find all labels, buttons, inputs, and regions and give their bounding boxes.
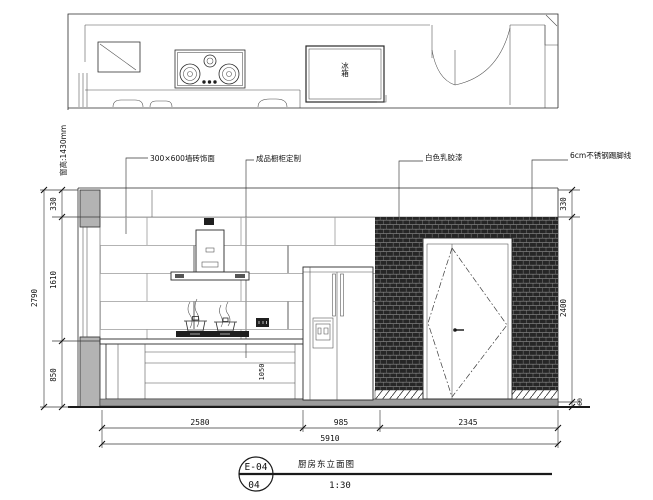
drawing-canvas: 冰箱 窗高:1430mm 300×600墙砖饰面 成品橱柜定制 白色乳胶漆 6c…	[0, 0, 653, 500]
dim-right-2400: 2400	[559, 298, 568, 317]
ceiling-band-line	[100, 190, 558, 217]
countertop	[100, 339, 308, 344]
hood-vent-icon	[204, 218, 214, 225]
left-wall-window	[80, 190, 100, 407]
drawing-scale: 1:30	[329, 481, 351, 491]
sheet-page: 04	[248, 480, 260, 491]
dim-bottom-overall: 5910	[320, 434, 339, 443]
plan-floor-objects	[113, 99, 287, 107]
dim-left-1610: 1610	[49, 270, 58, 289]
plan-corner-cabinet	[98, 42, 140, 72]
plan-entry-door	[432, 25, 510, 105]
dim-bottom-985: 985	[334, 418, 349, 427]
hood-control	[175, 274, 184, 278]
hood-control	[235, 274, 245, 278]
dim-bottom-2345: 2345	[458, 418, 477, 427]
elevation-view: 1050	[68, 188, 590, 407]
cooktop-base	[176, 331, 249, 337]
dim-right-60: 60	[576, 398, 584, 406]
callout-cabinet-label: 成品橱柜定制	[256, 153, 301, 163]
dim-bottom-2580: 2580	[190, 418, 209, 427]
plan-gas-stove	[175, 50, 245, 88]
drawing-sheet: 冰箱 窗高:1430mm 300×600墙砖饰面 成品橱柜定制 白色乳胶漆 6c…	[0, 0, 653, 500]
entry-door	[423, 238, 512, 399]
dim-left-overall: 2790	[30, 288, 39, 307]
dim-right-330: 330	[559, 197, 568, 211]
drawing-title: 厨房东立面图	[298, 459, 355, 470]
plan-refrigerator: 冰箱	[306, 46, 386, 102]
window-height-note: 窗高:1430mm	[58, 125, 68, 176]
cabinet-height-note: 1050	[258, 364, 266, 381]
plan-wall-notch	[545, 15, 558, 45]
dim-left-330: 330	[49, 197, 58, 211]
drawer-lines	[145, 352, 295, 383]
sheet-code: E-04	[245, 462, 268, 473]
refrigerator	[303, 267, 373, 400]
callout-paint-label: 白色乳胶漆	[425, 152, 463, 162]
callout-skirting-label: 6cm不锈钢踢脚线	[570, 150, 632, 160]
plan-fridge-label: 冰箱	[340, 61, 349, 79]
dim-left-850: 850	[49, 368, 58, 382]
base-cabinet: 1050	[100, 339, 308, 399]
title-block: E-04 04 厨房东立面图 1:30	[239, 457, 552, 491]
stove-knob	[208, 80, 211, 83]
plan-view: 冰箱	[68, 14, 558, 110]
wall-socket-icon	[256, 318, 269, 327]
stove-knob	[213, 80, 216, 83]
stove-knob	[202, 80, 205, 83]
callout-tile-label: 300×600墙砖饰面	[150, 153, 215, 163]
